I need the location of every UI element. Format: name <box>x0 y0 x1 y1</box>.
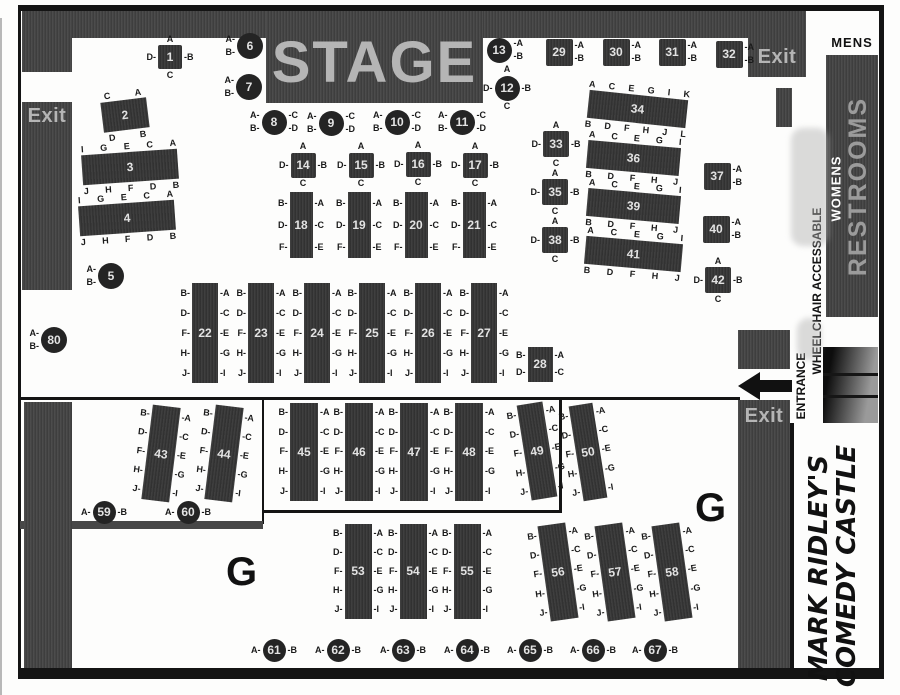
table-66-number: 66 <box>586 643 599 657</box>
seat-20-E: -E <box>430 243 439 252</box>
seat-row <box>392 512 435 524</box>
seat-column: -B <box>520 76 538 101</box>
seat-53-J: J- <box>334 605 342 614</box>
seat-26-C: -C <box>443 309 453 318</box>
seat-27-C: -C <box>499 309 509 318</box>
seat-row <box>85 524 124 536</box>
seat-row <box>448 662 487 674</box>
seat-column: D- <box>388 152 406 177</box>
seat-41-H: H <box>651 271 658 281</box>
table-18-number: 18 <box>294 218 307 232</box>
table-37-shape: 37 <box>704 163 731 190</box>
seat-50-J: J- <box>572 488 581 498</box>
seat-20-B: B- <box>393 199 403 208</box>
seat-column: A-B- <box>432 110 450 135</box>
seat-39-I: I <box>678 185 681 194</box>
seat-26-D: D- <box>404 309 414 318</box>
seat-43-G: -G <box>174 469 185 479</box>
seat-58-I: -I <box>693 603 700 613</box>
seat-66-B: -B <box>607 646 617 655</box>
seat-column: -B <box>116 501 134 524</box>
seat-12-D: D- <box>483 84 493 93</box>
exit-label-mid-right: Exit <box>738 400 790 428</box>
table-62-number: 62 <box>331 643 344 657</box>
seat-23-I: -I <box>276 369 282 378</box>
seat-column <box>67 327 85 353</box>
seat-row <box>708 29 751 41</box>
seat-column <box>698 41 716 68</box>
seat-17-B: -B <box>490 161 500 170</box>
seat-45-D: D- <box>279 428 289 437</box>
table-39-number: 39 <box>626 198 641 213</box>
seat-66-A: A- <box>570 646 580 655</box>
table-35-number: 35 <box>548 185 561 199</box>
seat-column <box>585 39 603 66</box>
seat-column: B-D-F-H-J- <box>174 283 192 383</box>
exit-label-top-right: Exit <box>758 46 797 69</box>
seat-29-A: -A <box>575 41 585 50</box>
seat-column: A- <box>245 639 263 662</box>
table-41-number: 41 <box>626 246 641 261</box>
seat-row <box>384 662 423 674</box>
seat-column: -B <box>479 639 497 662</box>
seat-3-G: G <box>100 143 108 152</box>
seat-column <box>568 88 589 118</box>
table-67: A-67-B <box>626 627 685 674</box>
seat-62-A: A- <box>315 646 325 655</box>
seat-column: B-D-F-H-J- <box>436 524 454 619</box>
seat-column: -A-C-E <box>428 192 446 258</box>
seat-55-H: H- <box>442 586 452 595</box>
table-61: A-61-B <box>245 627 304 674</box>
seat-34-K: K <box>683 89 690 99</box>
seat-36-A: A <box>588 130 595 140</box>
table-63: A-63-B <box>374 627 433 674</box>
seat-column: -A-C-E <box>486 192 504 258</box>
seat-48-F: F- <box>445 447 454 456</box>
table-53-number: 53 <box>351 564 364 578</box>
exit-label-top-left: Exit <box>22 102 72 128</box>
seat-41-J: J <box>674 273 680 282</box>
seat-58-D: D- <box>643 551 654 561</box>
seat-26-H: H- <box>404 349 414 358</box>
seat-59-B: -B <box>118 508 128 517</box>
seat-27-I: -I <box>499 369 505 378</box>
table-29-number: 29 <box>552 45 565 59</box>
seat-47-J: J- <box>390 487 398 496</box>
seat-44-I: -I <box>235 488 242 498</box>
seat-22-C: -C <box>220 309 230 318</box>
seat-row <box>392 391 436 403</box>
table-30-shape: 30 <box>603 39 630 66</box>
seat-row <box>384 627 423 639</box>
table-65-shape: 65 <box>519 639 542 662</box>
seat-14-D: D- <box>279 161 289 170</box>
seat-1-B: -B <box>184 53 194 62</box>
table-19-shape: 19 <box>348 192 371 258</box>
seat-2-A: A <box>134 87 142 97</box>
seat-row <box>636 662 675 674</box>
seat-49-F: F- <box>513 449 523 459</box>
seat-36-E: E <box>633 133 640 142</box>
seat-40-B: -B <box>732 231 742 240</box>
seat-62-B: -B <box>352 646 362 655</box>
table-49-number: 49 <box>529 443 544 459</box>
seat-2-B: B <box>139 129 147 139</box>
seat-column <box>177 147 197 178</box>
seat-27-D: D- <box>460 309 470 318</box>
seat-column: D- <box>140 45 158 69</box>
seat-row <box>479 63 520 75</box>
table-24: B-D-F-H-J-24-A-C-E-G-I <box>286 271 348 395</box>
seat-24-F: F- <box>294 329 303 338</box>
seat-45-J: J- <box>280 487 288 496</box>
seat-22-E: -E <box>220 329 229 338</box>
seat-row <box>636 627 675 639</box>
table-53-shape: 53 <box>345 524 372 619</box>
seat-column <box>263 33 281 59</box>
seat-column: B-D-F-H-J- <box>341 283 359 383</box>
table-4-number: 4 <box>123 211 131 225</box>
seat-row <box>311 99 352 111</box>
seat-33-A: A <box>553 121 560 130</box>
seat-18-E: -E <box>315 243 324 252</box>
table-63-shape: 63 <box>392 639 415 662</box>
seat-20-D: D- <box>393 221 403 230</box>
table-20-number: 20 <box>409 218 422 232</box>
table-16-shape: 16 <box>406 152 431 177</box>
seat-40-A: -A <box>732 218 742 227</box>
seat-27-E: -E <box>499 329 508 338</box>
seat-54-B: B- <box>388 529 398 538</box>
seat-58-B: B- <box>641 532 652 542</box>
seat-38-A: A <box>552 217 559 226</box>
scan-edge-line <box>0 18 2 695</box>
table-45-shape: 45 <box>290 403 318 501</box>
table-33-number: 33 <box>549 137 562 151</box>
table-54-number: 54 <box>406 564 419 578</box>
table-28-shape: 28 <box>528 347 553 382</box>
table-31-number: 31 <box>665 45 678 59</box>
seat-57-I: -I <box>636 603 643 613</box>
table-15-shape: 15 <box>349 153 374 178</box>
seat-column: D- <box>524 179 542 205</box>
seat-27-H: H- <box>460 349 470 358</box>
seat-row <box>282 180 321 192</box>
seat-45-H: H- <box>279 467 289 476</box>
seat-42-B: -B <box>733 276 743 285</box>
seat-column: -B <box>667 639 685 662</box>
seat-50-I: -I <box>607 482 614 492</box>
table-66: A-66-B <box>564 627 623 674</box>
seat-41-E: E <box>633 229 640 238</box>
seat-8-A: A- <box>250 111 260 120</box>
seat-21-F: F- <box>452 243 461 252</box>
seat-column: A- <box>564 639 582 662</box>
seat-29-B: -B <box>575 54 585 63</box>
seat-55-C: -C <box>483 548 493 557</box>
seat-column: -B <box>200 501 218 524</box>
seat-4-I: I <box>78 196 81 205</box>
table-9-number: 9 <box>328 116 335 130</box>
seat-13-A: -A <box>514 39 524 48</box>
table-13-number: 13 <box>492 43 505 57</box>
seat-column: -C-D <box>475 110 493 135</box>
table-12-shape: 12 <box>495 76 520 101</box>
table-17-shape: 17 <box>463 153 488 178</box>
table-3-number: 3 <box>126 160 134 174</box>
table-31: 31-A-B <box>641 27 704 78</box>
seat-row <box>169 489 208 501</box>
seat-25-A: -A <box>387 289 397 298</box>
seat-46-D: D- <box>334 428 344 437</box>
seat-column: A- <box>374 639 392 662</box>
table-45-number: 45 <box>297 445 310 459</box>
seat-column: D- <box>477 76 495 101</box>
table-11-shape: 11 <box>450 110 475 135</box>
table-25: B-D-F-H-J-25-A-C-E-G-I <box>341 271 403 395</box>
table-61-shape: 61 <box>263 639 286 662</box>
seat-24-B: B- <box>293 289 303 298</box>
seat-4-F: F <box>125 234 131 243</box>
seat-row <box>407 271 449 283</box>
seat-58-G: -G <box>690 583 701 593</box>
table-47-shape: 47 <box>400 403 428 501</box>
table-28-number: 28 <box>533 357 546 371</box>
table-20-shape: 20 <box>405 192 428 258</box>
seat-57-H: H- <box>592 589 603 599</box>
table-10-shape: 10 <box>385 110 410 135</box>
table-21-shape: 21 <box>463 192 486 258</box>
seat-1-D: D- <box>147 53 157 62</box>
seat-12-C: C <box>504 102 511 111</box>
seat-46-J: J- <box>335 487 343 496</box>
seat-row <box>351 271 393 283</box>
seat-row <box>446 512 489 524</box>
table-32: 32-A-B <box>698 29 761 80</box>
seat-43-D: D- <box>137 427 148 437</box>
seat-column: D- <box>445 153 463 178</box>
table-9-shape: 9 <box>319 111 344 136</box>
table-20: B-D-F-20-A-C-E <box>387 180 446 270</box>
seat-54-F: F- <box>389 567 398 576</box>
seat-48-D: D- <box>444 428 454 437</box>
seat-row <box>511 662 550 674</box>
seat-column <box>641 39 659 66</box>
table-42: AD-42-BC <box>687 255 749 305</box>
seat-48-I: -I <box>485 487 491 496</box>
table-58-number: 58 <box>664 564 679 580</box>
table-32-shape: 32 <box>716 41 743 68</box>
seat-54-J: J- <box>389 605 397 614</box>
seat-column <box>566 234 586 263</box>
mens-label: MENS <box>824 35 880 50</box>
table-17-number: 17 <box>468 158 481 172</box>
seat-24-H: H- <box>293 349 303 358</box>
seat-43-F: F- <box>136 446 146 456</box>
seat-column: -A-B <box>731 163 749 190</box>
table-55: B-D-F-H-J-55-A-C-E-G-I <box>436 512 499 631</box>
seat-23-J: J- <box>238 369 246 378</box>
seat-27-G: -G <box>499 349 509 358</box>
seat-56-H: H- <box>535 589 546 599</box>
seat-21-B: B- <box>451 199 461 208</box>
seat-41-B: B <box>583 265 590 275</box>
table-41: ACEGI41BDFHJ <box>564 222 701 285</box>
seat-54-H: H- <box>388 586 398 595</box>
seat-row: A <box>283 141 324 153</box>
seat-18-D: D- <box>278 221 288 230</box>
seat-column: -A-B <box>743 41 761 68</box>
seat-43-H: H- <box>133 464 144 474</box>
table-46-number: 46 <box>352 445 365 459</box>
seat-column: B-D-F- <box>387 192 405 258</box>
seat-43-B: B- <box>140 408 151 418</box>
table-38-number: 38 <box>548 233 561 247</box>
seat-26-A: -A <box>443 289 453 298</box>
seat-row <box>282 258 321 270</box>
seat-42-D: D- <box>694 276 704 285</box>
seat-21-D: D- <box>451 221 461 230</box>
seat-column: -B <box>731 267 749 293</box>
seat-row <box>337 391 381 403</box>
entrance-steps-graphic <box>823 347 878 423</box>
seat-column: A-B- <box>219 33 237 59</box>
table-80-shape: 80 <box>41 327 67 353</box>
seat-27-J: J- <box>461 369 469 378</box>
seat-36-G: G <box>655 135 663 145</box>
seat-row: C <box>150 69 190 81</box>
table-25-shape: 25 <box>359 283 385 383</box>
seat-60-A: A- <box>165 508 175 517</box>
seat-41-C: C <box>610 227 617 237</box>
seat-row <box>254 98 295 110</box>
seat-13-B: -B <box>514 52 524 61</box>
seat-15-A: A <box>358 142 365 151</box>
table-54-shape: 54 <box>400 524 427 619</box>
seat-column: A-B- <box>367 110 385 135</box>
seat-column: A-B- <box>244 110 262 135</box>
seat-37-A: -A <box>733 165 743 174</box>
seat-44-E: -E <box>239 450 249 460</box>
seat-column: A-B- <box>23 327 41 353</box>
seat-row: A <box>697 255 739 267</box>
seat-49-J: J- <box>520 487 529 497</box>
seat-19-B: B- <box>336 199 346 208</box>
seat-4-J: J <box>80 237 86 246</box>
seat-50-B: B- <box>558 412 569 422</box>
seat-27-B: B- <box>460 289 470 298</box>
seat-row <box>397 180 436 192</box>
seat-row <box>397 258 436 270</box>
seat-19-C: -C <box>373 221 383 230</box>
seat-25-F: F- <box>349 329 358 338</box>
restrooms-label: RESTROOMS <box>844 94 873 279</box>
comedy-castle-seating-chart: Exit Exit Exit STAGE MENS RESTROOMS WOME… <box>0 0 900 695</box>
table-18-shape: 18 <box>290 192 313 258</box>
seat-16-A: A <box>415 141 422 150</box>
seat-12-B: -B <box>522 84 532 93</box>
seat-22-G: -G <box>220 349 230 358</box>
seat-56-F: F- <box>533 570 543 580</box>
seat-column: -A-C-E <box>313 192 331 258</box>
seat-column: B-D-F-H-J- <box>382 524 400 619</box>
table-59-shape: 59 <box>93 501 116 524</box>
seat-row <box>448 627 487 639</box>
seat-43-E: -E <box>176 450 186 460</box>
seat-24-I: -I <box>332 369 338 378</box>
seat-row <box>696 151 739 163</box>
seat-61-B: -B <box>288 646 298 655</box>
seat-column: A-B- <box>218 74 236 100</box>
table-23-shape: 23 <box>248 283 274 383</box>
seat-column <box>685 100 706 130</box>
table-48-number: 48 <box>462 445 475 459</box>
seat-34-I: I <box>667 88 670 97</box>
seat-44-G: -G <box>237 469 248 479</box>
seat-48-G: -G <box>485 467 495 476</box>
seat-column <box>174 198 194 229</box>
seat-row <box>282 501 326 513</box>
seat-65-A: A- <box>507 646 517 655</box>
seat-column: D- <box>331 153 349 178</box>
seat-column <box>63 155 83 186</box>
seat-58-F: F- <box>647 570 657 580</box>
seat-column: B-D-F-H-J- <box>230 283 248 383</box>
table-29-shape: 29 <box>546 39 573 66</box>
stage-area: STAGE <box>266 11 483 103</box>
divider-logo-left <box>790 423 794 668</box>
table-8-shape: 8 <box>262 110 287 135</box>
seat-25-B: B- <box>348 289 358 298</box>
seat-58-E: -E <box>687 564 697 574</box>
table-36-number: 36 <box>626 150 641 165</box>
seat-column: A- <box>309 639 327 662</box>
seat-column: D- <box>524 227 542 253</box>
table-47-number: 47 <box>407 445 420 459</box>
seat-37-B: -B <box>733 178 743 187</box>
seat-17-D: D- <box>451 161 461 170</box>
seat-column: D- <box>525 131 543 157</box>
seat-27-A: -A <box>499 289 509 298</box>
seat-4-H: H <box>102 236 109 245</box>
seat-48-J: J- <box>445 487 453 496</box>
seat-column: A-B- <box>301 111 319 136</box>
seat-25-D: D- <box>348 309 358 318</box>
table-31-shape: 31 <box>659 39 686 66</box>
seat-25-C: -C <box>387 309 397 318</box>
seat-10-B: B- <box>373 124 383 133</box>
seat-row <box>377 98 418 110</box>
seat-26-B: B- <box>404 289 414 298</box>
seat-55-B: B- <box>442 529 452 538</box>
seat-row: A <box>455 141 496 153</box>
seat-column: D- <box>687 267 705 293</box>
seat-32-B: -B <box>745 56 755 65</box>
wall-right-lower: Exit <box>738 400 790 668</box>
table-21: B-D-F-21-A-C-E <box>445 180 504 270</box>
seat-column: A- <box>75 501 93 524</box>
seat-25-I: -I <box>387 369 393 378</box>
seat-21-A: -A <box>488 199 498 208</box>
seat-column <box>528 39 546 66</box>
seat-55-G: -G <box>483 586 493 595</box>
table-42-number: 42 <box>711 273 724 287</box>
seat-4-C: C <box>143 191 150 200</box>
seat-column: D- <box>273 153 291 178</box>
table-7-shape: 7 <box>236 74 262 100</box>
table-34-number: 34 <box>630 101 645 116</box>
